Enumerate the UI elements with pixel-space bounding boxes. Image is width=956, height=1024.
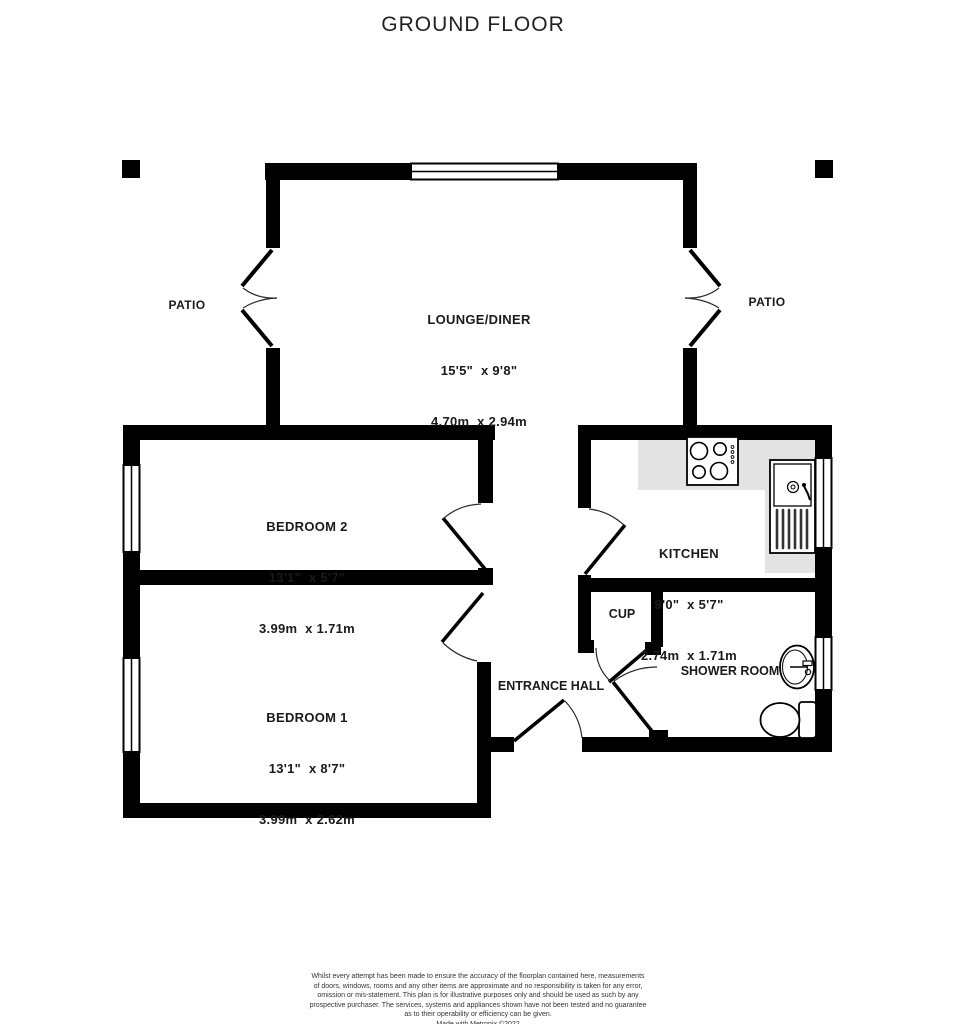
patio-corner-post-left <box>122 160 140 178</box>
room-name: BEDROOM 1 <box>259 709 355 726</box>
disclaimer-line: of doors, windows, rooms and any other i… <box>0 982 956 992</box>
room-name: KITCHEN <box>641 545 737 562</box>
window-lounge <box>411 164 558 180</box>
patio-door-left <box>242 250 277 346</box>
room-label-entrance-hall: ENTRANCE HALL <box>498 679 604 693</box>
disclaimer-line: prospective purchaser. The services, sys… <box>0 1001 956 1011</box>
room-label-cupboard: CUP <box>609 607 635 621</box>
disclaimer: Whilst every attempt has been made to en… <box>0 972 956 1024</box>
room-name: LOUNGE/DINER <box>427 311 530 328</box>
room-size-metric: 3.99m x 2.62m <box>259 811 355 828</box>
floorplan-graphic <box>0 0 956 1024</box>
disclaimer-line: Whilst every attempt has been made to en… <box>0 972 956 982</box>
room-size-metric: 2.74m x 1.71m <box>641 647 737 664</box>
patio-label-right: PATIO <box>749 295 786 309</box>
sink-icon <box>770 460 815 553</box>
door-bedroom-1 <box>442 593 483 661</box>
window-bedroom-2 <box>124 465 140 552</box>
room-size-imperial: 13'1" x 5'7" <box>259 569 355 586</box>
window-shower-room <box>816 637 832 690</box>
door-kitchen <box>585 509 625 574</box>
floorplan-canvas: GROUND FLOOR PATIO PATIO LOUNGE/DINER 15… <box>0 0 956 1024</box>
patio-label-left: PATIO <box>169 298 206 312</box>
room-label-bedroom-1: BEDROOM 1 13'1" x 8'7" 3.99m x 2.62m <box>259 675 355 862</box>
disclaimer-line: omission or mis-statement. This plan is … <box>0 991 956 1001</box>
door-bedroom-2 <box>443 504 485 569</box>
floorplan-title: GROUND FLOOR <box>381 13 565 37</box>
window-bedroom-1 <box>124 658 140 752</box>
room-name: BEDROOM 2 <box>259 518 355 535</box>
room-size-imperial: 15'5" x 9'8" <box>427 362 530 379</box>
room-size-imperial: 13'1" x 8'7" <box>259 760 355 777</box>
room-label-shower-room: SHOWER ROOM <box>681 664 780 678</box>
toilet-icon <box>761 702 817 738</box>
room-label-lounge-diner: LOUNGE/DINER 15'5" x 9'8" 4.70m x 2.94m <box>427 277 530 464</box>
credit-line: Made with Metropix ©2022 <box>0 1020 956 1024</box>
room-label-bedroom-2: BEDROOM 2 13'1" x 5'7" 3.99m x 1.71m <box>259 484 355 671</box>
door-entrance <box>514 700 582 741</box>
basin-icon <box>780 646 814 689</box>
patio-corner-post-right <box>815 160 833 178</box>
room-size-imperial: 9'0" x 5'7" <box>641 596 737 613</box>
window-kitchen <box>816 458 832 548</box>
disclaimer-line: as to their operability or efficiency ca… <box>0 1010 956 1020</box>
room-size-metric: 3.99m x 1.71m <box>259 620 355 637</box>
patio-door-right <box>685 250 720 346</box>
hob-icon <box>687 437 738 485</box>
room-size-metric: 4.70m x 2.94m <box>427 413 530 430</box>
